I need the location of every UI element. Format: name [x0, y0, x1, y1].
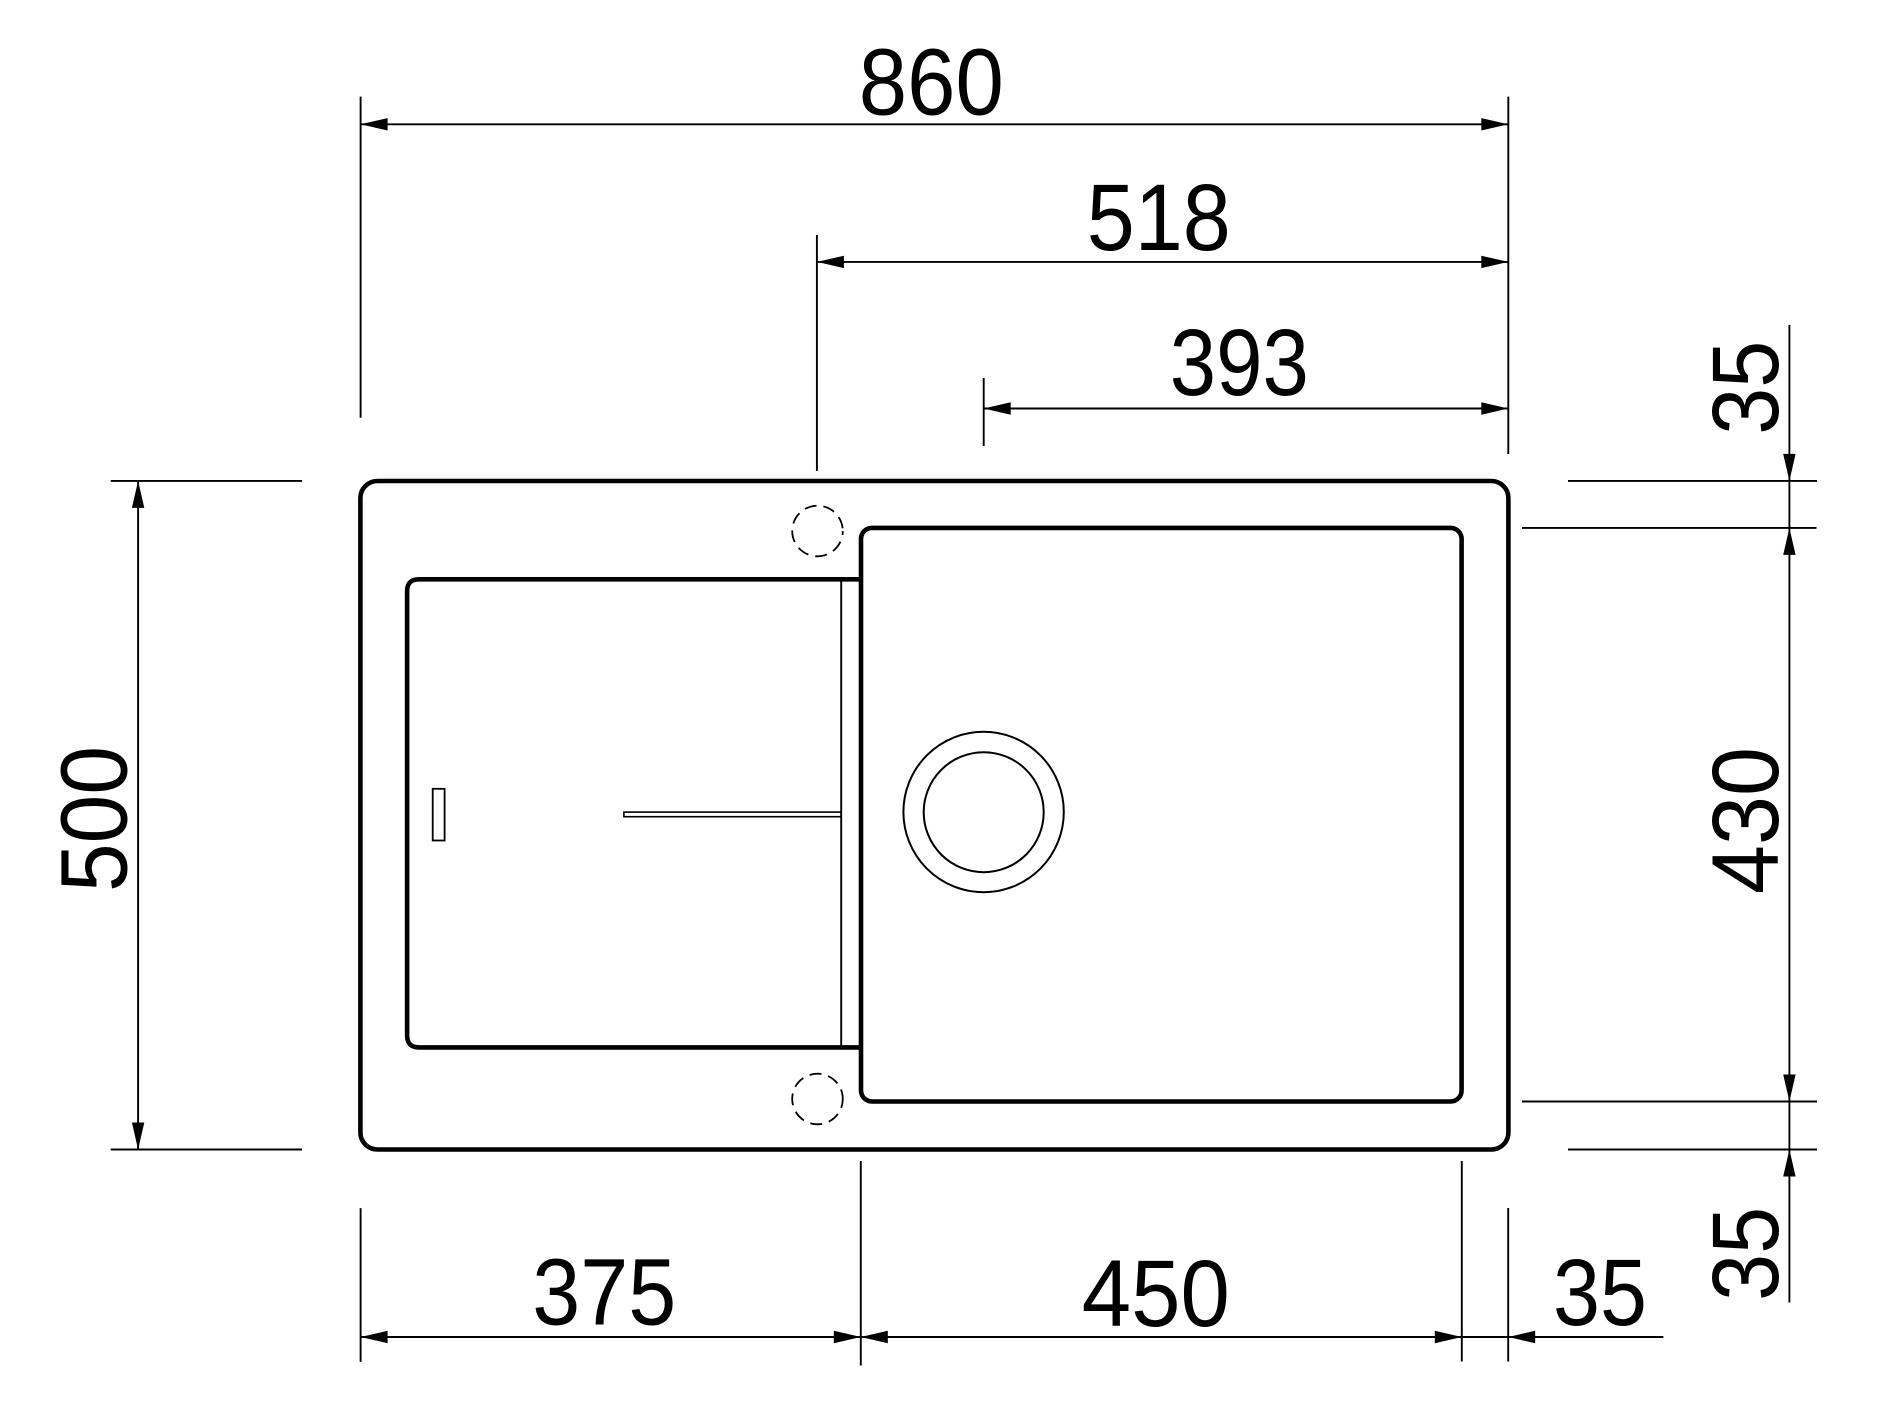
svg-text:35: 35 [1693, 1207, 1799, 1301]
svg-text:35: 35 [1693, 341, 1799, 435]
svg-text:518: 518 [1087, 165, 1231, 271]
svg-text:450: 450 [1082, 1241, 1230, 1347]
svg-text:860: 860 [859, 29, 1004, 135]
svg-text:430: 430 [1693, 747, 1799, 894]
svg-text:375: 375 [532, 1240, 676, 1346]
svg-text:35: 35 [1553, 1240, 1647, 1346]
svg-text:393: 393 [1170, 310, 1309, 416]
svg-text:500: 500 [42, 746, 148, 892]
